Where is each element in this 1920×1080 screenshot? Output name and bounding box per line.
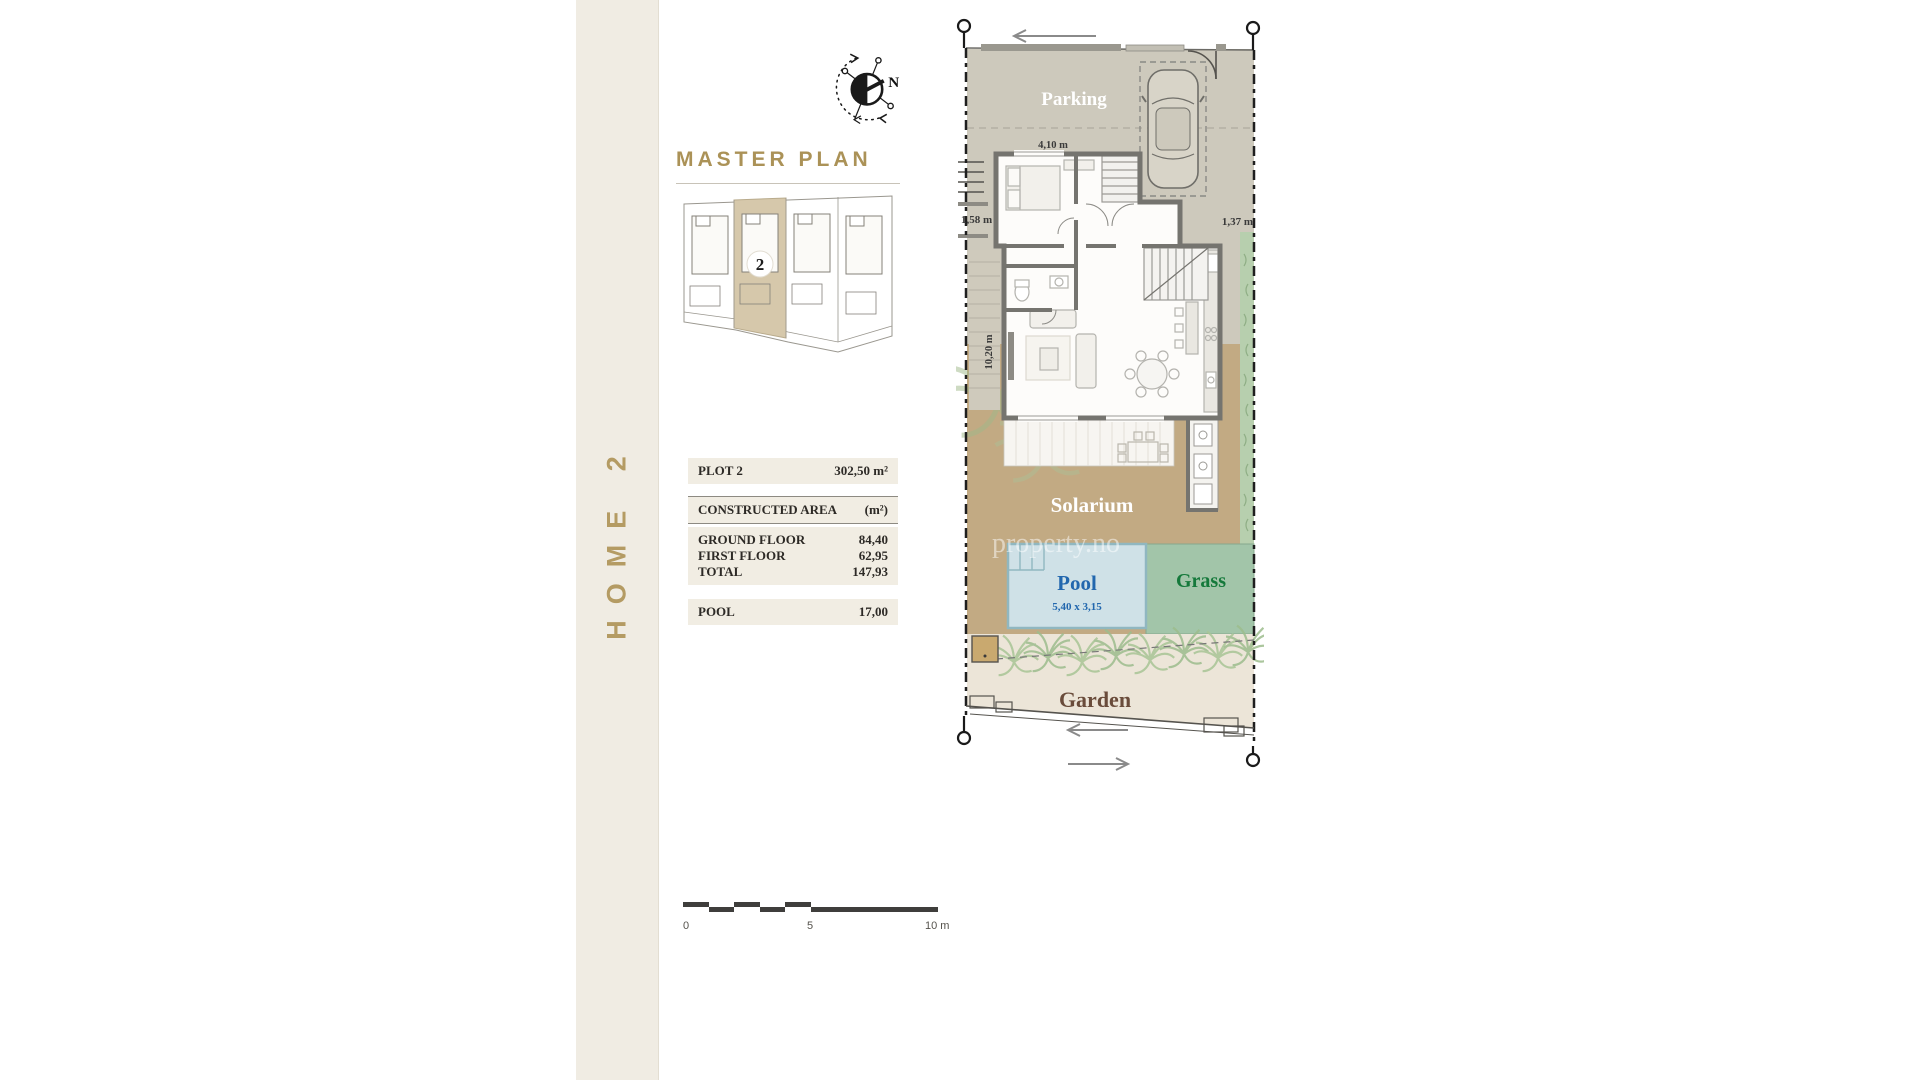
terrace — [1004, 420, 1174, 466]
garden-planter — [972, 636, 998, 662]
bedroom-closet — [1064, 160, 1094, 170]
master-plan-title: MASTER PLAN — [676, 148, 900, 172]
plot-row: PLOT 2 302,50 m² — [688, 458, 898, 484]
table-row: FIRST FLOOR 62,95 — [698, 548, 888, 564]
pool-area-label: Pool — [1057, 571, 1097, 595]
dim-side-depth: 10,20 m — [984, 334, 995, 369]
scale-tick-10: 10 m — [925, 920, 949, 932]
kitchen-island — [1186, 302, 1198, 354]
side-green-strip — [1240, 232, 1254, 547]
first-floor-value: 62,95 — [859, 548, 888, 564]
plot-value: 302,50 m² — [834, 463, 888, 479]
constructed-area-unit: (m²) — [865, 502, 888, 518]
home-band: HOME 2 — [576, 0, 659, 1080]
grass-label: Grass — [1176, 570, 1226, 592]
site-plan: Parking Solarium property.no Pool 5,40 x… — [956, 4, 1264, 784]
floors-block: GROUND FLOOR 84,40 FIRST FLOOR 62,95 TOT… — [688, 527, 898, 585]
home-band-label: HOME 2 — [602, 440, 633, 640]
north-compass-icon: N — [832, 46, 902, 134]
plot-label: PLOT 2 — [698, 463, 743, 479]
table-row: GROUND FLOOR 84,40 — [698, 532, 888, 548]
annex — [1188, 418, 1218, 510]
pin-top-left — [958, 20, 970, 48]
arrow-bottom-right-dir — [1068, 758, 1128, 770]
constructed-area-header: CONSTRUCTED AREA (m²) — [688, 496, 898, 524]
scale-tick-5: 5 — [807, 920, 813, 932]
compass-north-label: N — [888, 74, 899, 91]
compass-arrow-bottom — [880, 114, 887, 122]
plot-info-table: PLOT 2 302,50 m² CONSTRUCTED AREA (m²) G… — [688, 458, 898, 625]
total-value: 147,93 — [852, 564, 888, 580]
scale-bar: 0 5 10 m — [683, 902, 953, 938]
pool-label: POOL — [698, 604, 735, 620]
constructed-area-label: CONSTRUCTED AREA — [698, 502, 837, 518]
ground-floor-value: 84,40 — [859, 532, 888, 548]
first-floor-label: FIRST FLOOR — [698, 548, 786, 564]
dim-left-setback: 1,58 m — [961, 214, 992, 226]
arrow-bottom-left-dir — [1068, 724, 1128, 736]
watermark: property.no — [992, 528, 1120, 559]
dim-right-setback: 1,37 m — [1222, 216, 1253, 228]
pool-value: 17,00 — [859, 604, 888, 620]
table-row: TOTAL 147,93 — [698, 564, 888, 580]
street-wall — [981, 44, 1121, 51]
bed — [1006, 166, 1060, 210]
pin-bottom-right — [1247, 746, 1259, 766]
solarium-label: Solarium — [1051, 493, 1134, 517]
ground-floor-label: GROUND FLOOR — [698, 532, 805, 548]
dim-bedroom-width: 4,10 m — [1038, 140, 1068, 151]
pin-bottom-left — [958, 716, 970, 744]
side-passage-steps — [969, 250, 1000, 410]
total-label: TOTAL — [698, 564, 742, 580]
car-icon — [1142, 70, 1204, 188]
master-plan-rule — [676, 183, 900, 184]
pool-row: POOL 17,00 — [688, 599, 898, 625]
arrow-top-left-dir — [1014, 30, 1096, 42]
pin-top-right — [1247, 22, 1259, 50]
garden-label: Garden — [1059, 687, 1131, 712]
scale-tick-0: 0 — [683, 920, 689, 932]
master-plan-thumbnail: 2 — [676, 188, 900, 360]
parking-label: Parking — [1041, 89, 1107, 110]
pool-dimensions-label: 5,40 x 3,15 — [1052, 601, 1102, 613]
plot-2-number: 2 — [756, 255, 765, 274]
page: { "sidebar": { "label": "HOME 2" }, "mas… — [0, 0, 1920, 1080]
